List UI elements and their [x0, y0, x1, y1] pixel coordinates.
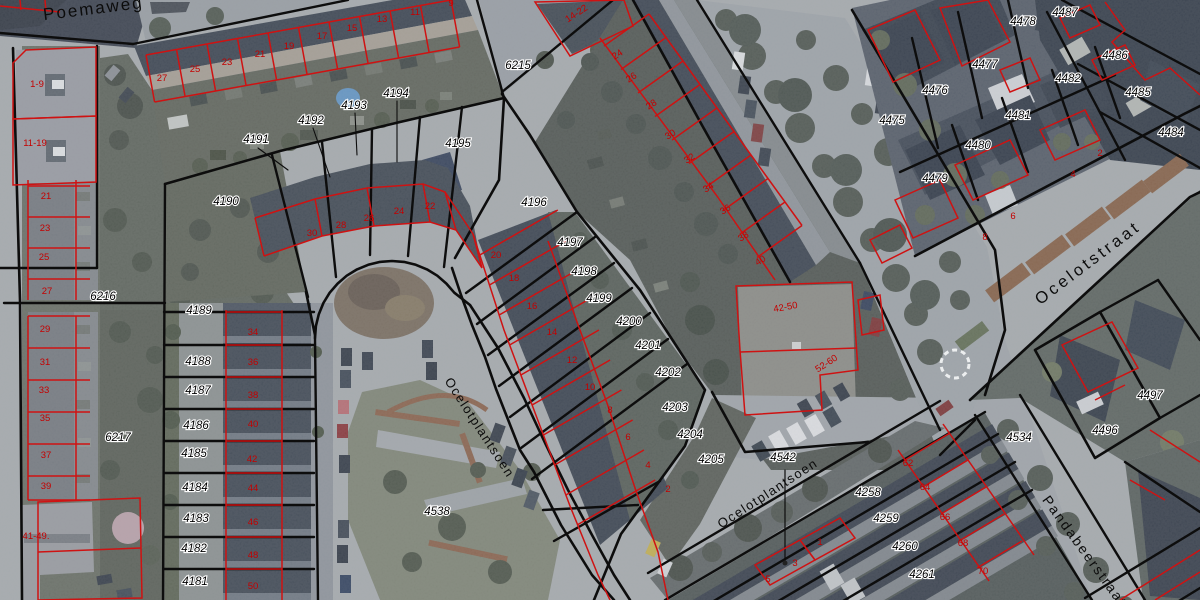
svg-text:30: 30 — [307, 228, 318, 239]
svg-text:19: 19 — [284, 41, 295, 52]
svg-text:18: 18 — [509, 273, 520, 284]
svg-text:4481: 4481 — [1005, 110, 1031, 122]
svg-text:29: 29 — [40, 324, 51, 335]
svg-text:4186: 4186 — [183, 420, 209, 432]
svg-text:50: 50 — [248, 581, 259, 592]
svg-text:4482: 4482 — [1055, 73, 1081, 85]
svg-text:21: 21 — [41, 191, 52, 202]
svg-text:4258: 4258 — [855, 487, 881, 499]
svg-text:41-49.: 41-49. — [23, 531, 50, 542]
svg-text:16: 16 — [527, 301, 538, 312]
svg-text:4259: 4259 — [873, 513, 899, 525]
svg-text:4184: 4184 — [182, 482, 208, 494]
svg-text:20: 20 — [491, 250, 502, 261]
svg-text:4205: 4205 — [698, 454, 724, 466]
svg-text:4200: 4200 — [616, 316, 642, 328]
svg-text:4261: 4261 — [909, 569, 935, 581]
svg-text:4486: 4486 — [1102, 50, 1128, 62]
svg-text:13: 13 — [377, 14, 388, 25]
svg-text:26: 26 — [364, 213, 375, 224]
svg-text:4: 4 — [1070, 169, 1075, 180]
svg-text:24: 24 — [394, 206, 405, 217]
svg-text:23: 23 — [40, 223, 51, 234]
svg-text:40: 40 — [248, 419, 259, 430]
svg-text:4197: 4197 — [557, 237, 583, 249]
svg-text:5: 5 — [765, 574, 770, 585]
svg-text:17: 17 — [317, 31, 328, 42]
svg-text:37: 37 — [41, 450, 52, 461]
svg-text:4475: 4475 — [879, 115, 905, 127]
svg-text:4480: 4480 — [965, 140, 991, 152]
svg-text:39: 39 — [41, 481, 52, 492]
svg-text:36: 36 — [248, 357, 259, 368]
svg-text:4201: 4201 — [635, 340, 661, 352]
svg-text:4189: 4189 — [186, 305, 212, 317]
svg-text:6216: 6216 — [90, 291, 116, 303]
svg-text:4188: 4188 — [185, 356, 211, 368]
svg-text:8: 8 — [982, 232, 987, 243]
svg-text:4497: 4497 — [1137, 390, 1163, 402]
svg-text:31: 31 — [40, 357, 51, 368]
svg-text:4496: 4496 — [1092, 425, 1118, 437]
svg-text:4476: 4476 — [922, 85, 948, 97]
svg-text:4484: 4484 — [1158, 127, 1184, 139]
svg-text:6: 6 — [1010, 211, 1015, 222]
svg-text:10: 10 — [585, 382, 596, 393]
svg-text:4185: 4185 — [181, 448, 207, 460]
svg-text:4203: 4203 — [662, 402, 688, 414]
svg-text:1-9: 1-9 — [30, 79, 44, 90]
svg-text:4487: 4487 — [1052, 7, 1078, 19]
svg-text:4534: 4534 — [1006, 432, 1032, 444]
svg-text:22: 22 — [425, 201, 436, 212]
svg-text:6215: 6215 — [505, 60, 531, 72]
svg-text:4187: 4187 — [185, 385, 211, 397]
svg-text:64: 64 — [920, 482, 931, 493]
svg-text:27: 27 — [157, 73, 168, 84]
svg-text:1: 1 — [817, 537, 822, 548]
svg-text:12: 12 — [567, 355, 578, 366]
svg-text:4190: 4190 — [213, 196, 239, 208]
svg-text:4193: 4193 — [341, 100, 367, 112]
svg-text:4199: 4199 — [586, 293, 612, 305]
svg-text:66: 66 — [940, 512, 951, 523]
svg-text:4191: 4191 — [243, 134, 269, 146]
svg-text:62: 62 — [903, 458, 914, 469]
svg-text:4202: 4202 — [655, 367, 681, 379]
svg-text:4204: 4204 — [677, 429, 703, 441]
svg-text:11-19: 11-19 — [23, 138, 47, 149]
svg-text:4182: 4182 — [181, 543, 207, 555]
svg-text:27: 27 — [42, 286, 53, 297]
svg-text:4192: 4192 — [298, 115, 324, 127]
svg-text:38: 38 — [248, 390, 259, 401]
svg-text:46: 46 — [248, 517, 259, 528]
svg-text:6: 6 — [625, 432, 630, 443]
svg-text:25: 25 — [190, 64, 201, 75]
svg-text:4195: 4195 — [445, 138, 471, 150]
svg-text:3: 3 — [792, 558, 797, 569]
svg-text:6217: 6217 — [105, 432, 131, 444]
svg-text:4477: 4477 — [972, 59, 998, 71]
svg-text:4260: 4260 — [892, 541, 918, 553]
svg-text:70: 70 — [978, 566, 989, 577]
svg-text:9: 9 — [448, 0, 453, 9]
svg-text:23: 23 — [222, 57, 233, 68]
svg-text:4196: 4196 — [521, 197, 547, 209]
svg-text:4194: 4194 — [383, 88, 409, 100]
svg-text:33: 33 — [39, 385, 50, 396]
svg-text:28: 28 — [336, 220, 347, 231]
svg-text:68: 68 — [958, 538, 969, 549]
svg-text:21: 21 — [255, 49, 266, 60]
svg-text:15: 15 — [347, 23, 358, 34]
svg-text:44: 44 — [248, 483, 259, 494]
svg-text:34: 34 — [248, 327, 259, 338]
svg-text:35: 35 — [40, 413, 51, 424]
svg-text:14: 14 — [547, 327, 558, 338]
svg-text:8: 8 — [607, 405, 612, 416]
svg-text:4181: 4181 — [182, 576, 208, 588]
svg-text:4485: 4485 — [1125, 87, 1151, 99]
svg-text:2: 2 — [1097, 148, 1102, 159]
svg-text:4542: 4542 — [770, 452, 796, 464]
svg-text:4478: 4478 — [1010, 16, 1036, 28]
svg-text:4479: 4479 — [922, 173, 948, 185]
svg-text:25: 25 — [39, 252, 50, 263]
svg-text:4: 4 — [645, 460, 650, 471]
svg-text:4198: 4198 — [571, 266, 597, 278]
svg-text:11: 11 — [410, 7, 420, 18]
svg-text:42: 42 — [247, 454, 258, 465]
svg-text:2: 2 — [665, 484, 670, 495]
svg-text:48: 48 — [248, 550, 259, 561]
svg-text:4183: 4183 — [183, 513, 209, 525]
svg-text:4538: 4538 — [424, 506, 450, 518]
